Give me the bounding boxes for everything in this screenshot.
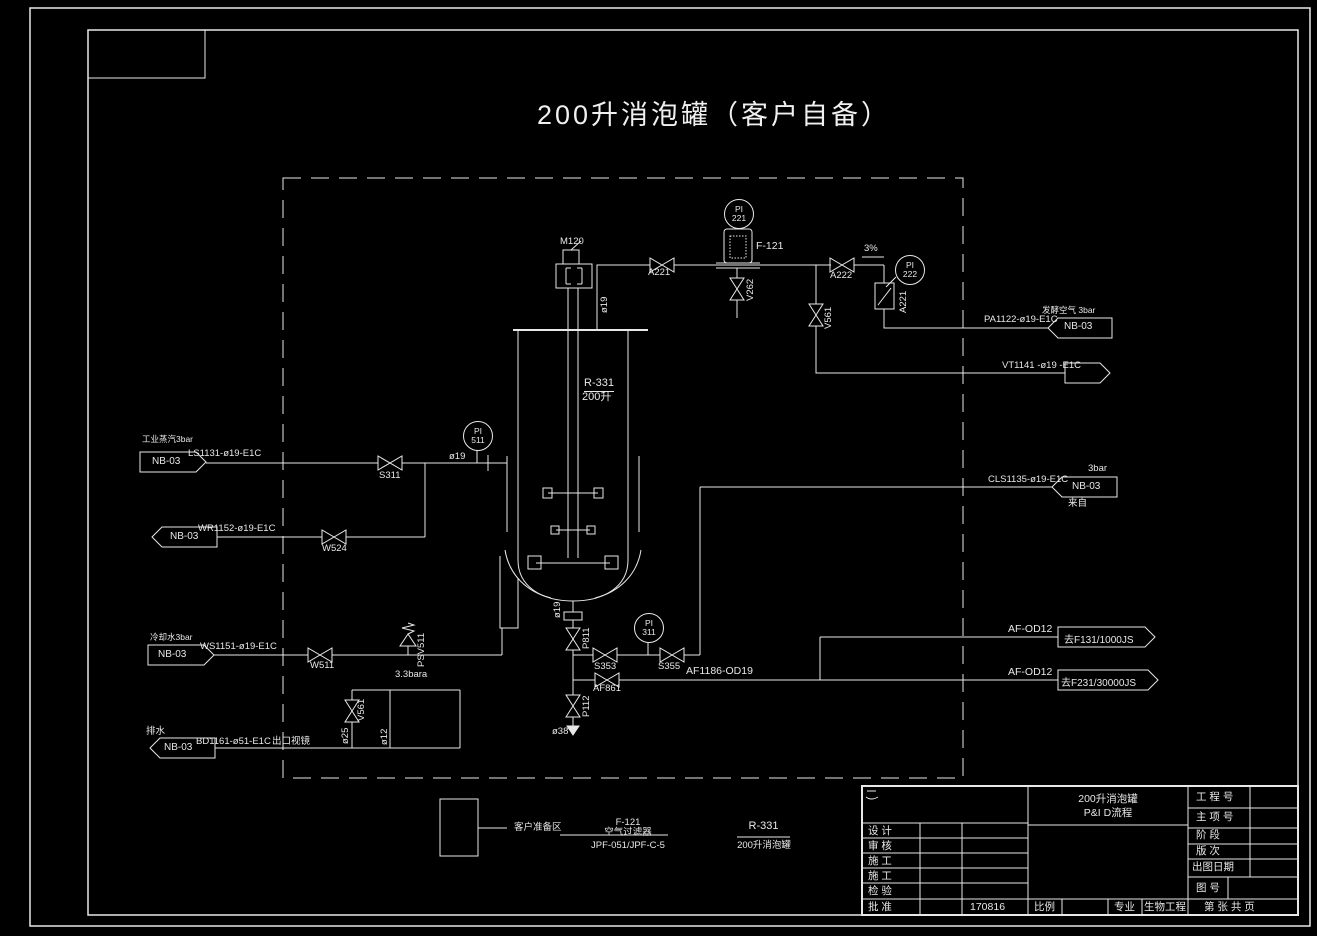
- bottom-outlet: [564, 487, 1058, 735]
- tb-approve-value: 170816: [970, 902, 1005, 913]
- instrument-pi511: PI 511: [463, 421, 493, 451]
- tank-tag-label: R-331: [584, 378, 614, 392]
- cooling-line-label: WS1151-ø19-E1C: [200, 642, 277, 652]
- tb-rev-label: 版 次: [1196, 846, 1220, 857]
- page-title: 200升消泡罐（客户自备）: [537, 93, 891, 132]
- tb-check-label: 审 核: [868, 841, 892, 852]
- valve-s311-label: S311: [379, 471, 400, 481]
- legend-tank-name: 200升消泡罐: [733, 841, 795, 851]
- drain-line-label: BD1161-ø51-E1C: [196, 737, 271, 747]
- airout-line-label: PA1122-ø19-E1C: [984, 315, 1058, 325]
- top-size-label: ø19: [600, 297, 610, 313]
- instrument-tag: 222: [903, 270, 917, 279]
- valve-v561-drain-label: V561: [357, 699, 367, 721]
- tb-discipline-label: 专业: [1114, 902, 1135, 913]
- logo-mark: [866, 791, 878, 799]
- valve-af861-label: AF861: [593, 684, 621, 694]
- valve-v561-air-label: V561: [824, 307, 834, 329]
- valve-psv511-label: PSV511: [417, 633, 427, 667]
- drain-note-label: 出口视镜: [272, 737, 310, 747]
- outlet-arrow: [567, 726, 579, 735]
- tb-design-label: 设 计: [868, 826, 892, 837]
- steam-size-label: ø19: [449, 452, 465, 462]
- motor-tag-label: M120: [560, 237, 584, 247]
- valve-a222-label: A222: [830, 271, 852, 281]
- tb-inspect-label: 检 验: [868, 886, 892, 897]
- steam-service-label: 工业蒸汽3bar: [142, 435, 193, 444]
- tb-sheet-label: 第 张 共 页: [1204, 902, 1255, 913]
- tb-dwgno-label: 图 号: [1196, 883, 1220, 894]
- airout-service-label: 发酵空气 3bar: [1042, 306, 1095, 315]
- filter-tag-label: F-121: [756, 241, 783, 252]
- antifoam-pressure-label: 3bar: [1088, 464, 1107, 474]
- tb-discipline-value: 生物工程: [1144, 902, 1186, 913]
- valve-v262-label: V262: [746, 279, 756, 301]
- cooling-connector-label: NB-03: [158, 649, 186, 660]
- legend-tank-tag: R-331: [737, 821, 790, 833]
- valve-a221-label: A221: [648, 268, 670, 278]
- valve-psv511: [400, 634, 416, 646]
- valve-s355-label: S355: [658, 662, 680, 672]
- outlet-size-label: ø38: [552, 727, 568, 737]
- airout-connector-label: NB-03: [1064, 321, 1092, 332]
- valve-w511-label: W511: [310, 661, 334, 671]
- outer-border: [30, 8, 1310, 926]
- instrument-tag: 511: [471, 436, 485, 445]
- legend-area-label: 客户准备区: [514, 823, 562, 833]
- steam-line: [140, 449, 507, 537]
- tb-date-label: 出图日期: [1192, 862, 1234, 873]
- valve-w524: [322, 530, 346, 544]
- valve-s353: [593, 648, 617, 662]
- af-f131-line-label: AF-OD12: [1008, 624, 1052, 635]
- valve-p811-label: P811: [582, 628, 592, 649]
- instrument-tag: 221: [732, 214, 746, 223]
- valve-s353-label: S353: [594, 662, 616, 672]
- valve-p811: [566, 628, 580, 650]
- steam-line-label: LS1131-ø19-E1C: [188, 449, 261, 459]
- bottom-size-label: ø19: [553, 602, 563, 618]
- drain-size2-label: ø12: [380, 729, 390, 745]
- valve-p112-label: P112: [582, 696, 592, 717]
- legend-filter-model: JPF-051/JPF-C-5: [583, 841, 673, 851]
- valve-s355: [660, 648, 684, 662]
- corner-box: [88, 30, 205, 78]
- air-line: [597, 224, 1065, 373]
- agitator-motor: [528, 241, 618, 569]
- psv-setpoint-label: 3.3bara: [395, 670, 427, 680]
- af-f231-dest-label: 去F231/30000JS: [1061, 674, 1136, 689]
- valve-v262: [730, 278, 744, 300]
- af-f231-line-label: AF-OD12: [1008, 667, 1052, 678]
- tb-item-label: 主 项 号: [1196, 812, 1233, 823]
- legend-filter-name: 空气过滤器: [598, 828, 658, 838]
- af-f131-dest-label: 去F131/1000JS: [1064, 631, 1134, 646]
- tb-title-line1: 200升消泡罐: [1038, 794, 1178, 805]
- drain-size1-label: ø25: [341, 728, 351, 744]
- tb-stage-label: 阶 段: [1196, 830, 1220, 841]
- rotameter-label: A221: [899, 291, 909, 313]
- tb-constr1-label: 施 工: [868, 856, 892, 867]
- antifoam-connector-label: NB-03: [1072, 481, 1100, 492]
- instrument-tag: 311: [642, 628, 656, 637]
- instrument-pi311: PI 311: [634, 613, 664, 643]
- vent-line-label: VT1141 -ø19 -E1C: [1002, 361, 1081, 371]
- valve-w524-label: W524: [322, 544, 347, 554]
- tank-r331: [500, 330, 648, 628]
- drain-line: [150, 690, 460, 758]
- steam-connector-label: NB-03: [152, 456, 180, 467]
- pid-drawing-sheet: 200升消泡罐（客户自备） PI 221 PI 222 PI 511 PI 31…: [0, 0, 1317, 936]
- antifoam-origin-label: 来自: [1068, 499, 1087, 509]
- tb-constr2-label: 施 工: [868, 871, 892, 882]
- drain-service-label: 排水: [146, 727, 165, 737]
- condensate-line-label: WR1152-ø19-E1C: [198, 524, 275, 534]
- valve-p112: [566, 695, 580, 717]
- tb-project-label: 工 程 号: [1196, 792, 1233, 803]
- cooling-service-label: 冷却水3bar: [150, 633, 193, 642]
- condensate-connector-label: NB-03: [170, 531, 198, 542]
- valve-s311: [378, 456, 402, 470]
- inner-border: [88, 30, 1298, 915]
- tank-capacity-label: 200升: [582, 392, 611, 404]
- tb-scale-label: 比例: [1034, 902, 1055, 913]
- antifoam-header-label: AF1186-OD19: [686, 666, 753, 677]
- instrument-pi222: PI 222: [895, 255, 925, 285]
- tb-title-line2: P&I D流程: [1038, 808, 1178, 819]
- titleblock-grid: [862, 786, 1298, 915]
- slope-label: 3%: [864, 244, 878, 254]
- valve-v561-air: [809, 304, 823, 326]
- drain-connector-label: NB-03: [164, 742, 192, 753]
- tb-approve-label: 批 准: [868, 902, 892, 913]
- antifoam-line-label: CLS1135-ø19-E1C: [988, 475, 1068, 485]
- instrument-pi221: PI 221: [724, 199, 754, 229]
